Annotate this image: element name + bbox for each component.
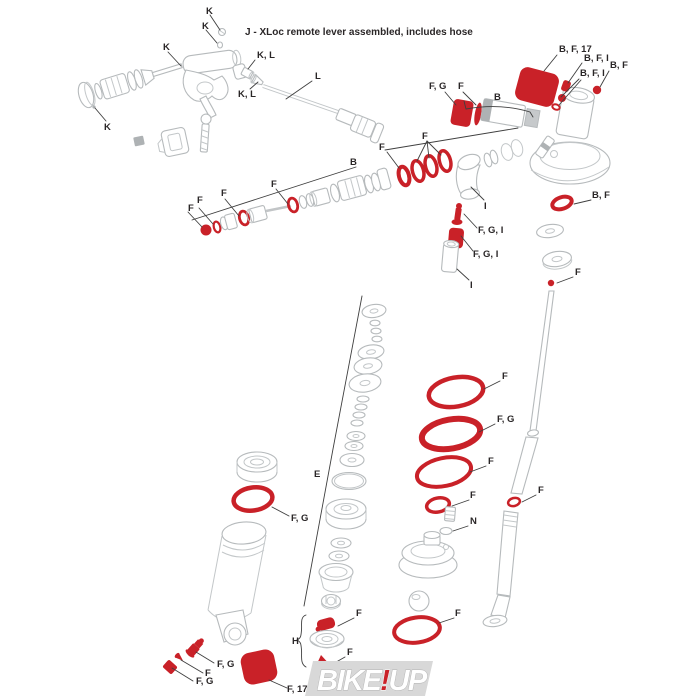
n-cylinder [444,507,455,522]
label-f-oring3: F [488,456,494,467]
label-n: N [470,516,477,527]
air-piston [399,532,457,579]
body-top-cap [237,452,277,482]
label-l-hose: L [315,71,321,82]
end-washer [482,614,507,628]
gray-cylinder-i [441,240,459,273]
compression-fitting [250,74,265,87]
oring-small-a [238,210,250,226]
label-b-rod: B [350,157,357,168]
label-k-plunger: K [104,122,111,133]
label-fgi-1: F, G, I [478,225,503,236]
oring-small-b [287,197,299,213]
label-f-oring-b: F [271,179,277,190]
seal-head [310,631,344,649]
diagram-title: J - XLoc remote lever assembled, include… [245,27,473,38]
label-f-seal: F [379,142,385,153]
stack-piston [326,499,366,529]
clamp-nut [133,136,145,147]
label-f-glide: F [356,608,362,619]
plunger-part [76,53,186,109]
label-i-cylinder: I [470,280,473,291]
label-bfi-1: B, F, I [584,53,609,64]
oring-large-3 [414,453,474,492]
label-h: H [292,636,299,647]
label-fg-valvecap: F, G [196,676,213,687]
red-top-cap [513,65,560,108]
oring-bf [551,194,574,211]
large-orings [392,373,485,646]
remote-lever-assembly [76,29,385,159]
label-i-elbow: I [484,201,487,212]
label-fg-oring2: F, G [497,414,514,425]
diagram-canvas: J - XLoc remote lever assembled, include… [0,0,700,700]
label-fg-shock: F, G [291,513,308,524]
exploded-parts-diagram: J - XLoc remote lever assembled, include… [0,0,700,700]
red-ball-detent [201,225,212,236]
oring-bottom [392,614,441,645]
label-f-shaftdot: F [575,267,581,278]
washer-thick [542,250,573,271]
label-f-wiper: F [347,647,353,658]
label-bf-dot: B, F [610,60,628,71]
piston-barrel [337,175,367,201]
label-f-ball: F [188,203,194,214]
label-f-oring4: F [470,490,476,501]
label-kl-bottom: K, L [238,89,256,100]
label-k-screw1: K [206,6,213,17]
clamp-part [156,127,190,158]
label-b-barb: B [494,92,501,103]
label-f-shaftoring: F [538,485,544,496]
red-valve-stem [184,635,207,659]
shaft-oring [507,497,521,508]
check-ball [409,591,429,611]
shock-body-group [208,452,277,645]
oring-large-2 [419,415,482,454]
label-bfi-2: B, F, I [580,68,605,79]
n-oring [440,528,452,535]
push-rod [266,206,291,211]
logo-text: BIKE!UP [317,665,428,697]
banjo-fittings [441,203,464,273]
lever-screw [218,29,226,49]
red-pin-flange [452,219,463,225]
thin-shaft [530,291,554,431]
shock-canister [208,520,267,645]
red-ferrule [450,98,474,127]
label-bf-ring: B, F [592,190,610,201]
n-piston-parts [399,507,457,611]
damper-rod-assembly [201,138,525,235]
label-f-oring1: F [502,371,508,382]
cap-neck [556,85,596,139]
logo-up: UP [388,665,427,697]
red-glide-ring [313,616,336,632]
label-f-sliver: F [458,81,464,92]
lock-nut [322,595,341,610]
label-fg-valvestem: F, G [217,659,234,670]
label-k-lever: K [163,42,170,53]
oring-fg-shock [232,485,274,513]
stack-cup [319,564,353,593]
label-f-bottomoring: F [455,608,461,619]
washer-thin [536,223,565,240]
upper-tube [511,437,538,494]
label-f-oring-a: F [221,188,227,199]
red-end-cap [239,648,279,686]
red-dot-f [548,280,554,286]
label-fgi-2: F, G, I [473,249,498,260]
hose-barb-parts [450,98,541,130]
red-seal [397,166,412,187]
lower-tube [497,511,518,596]
oring-large-1 [426,373,485,411]
clamp-bolt [199,114,212,153]
shaft-end [491,595,510,618]
hose-part [263,86,384,144]
label-f-minioring: F [197,195,203,206]
bikeup-logo: BIKE!UP [305,661,433,697]
label-f-trio: F [422,131,428,142]
gray-plug [219,213,238,232]
label-f17: F, 17 [287,684,308,695]
shim-stack [319,303,387,609]
label-kl-top: K, L [257,50,275,61]
label-k-screw2: K [202,21,209,32]
elbow-fitting [456,151,482,200]
label-fg-ferrule: F, G [429,81,446,92]
lever-body [182,49,248,118]
logo-bike: BIKE [317,665,383,697]
label-e-stack: E [314,469,320,480]
red-valve-cap [162,659,178,674]
